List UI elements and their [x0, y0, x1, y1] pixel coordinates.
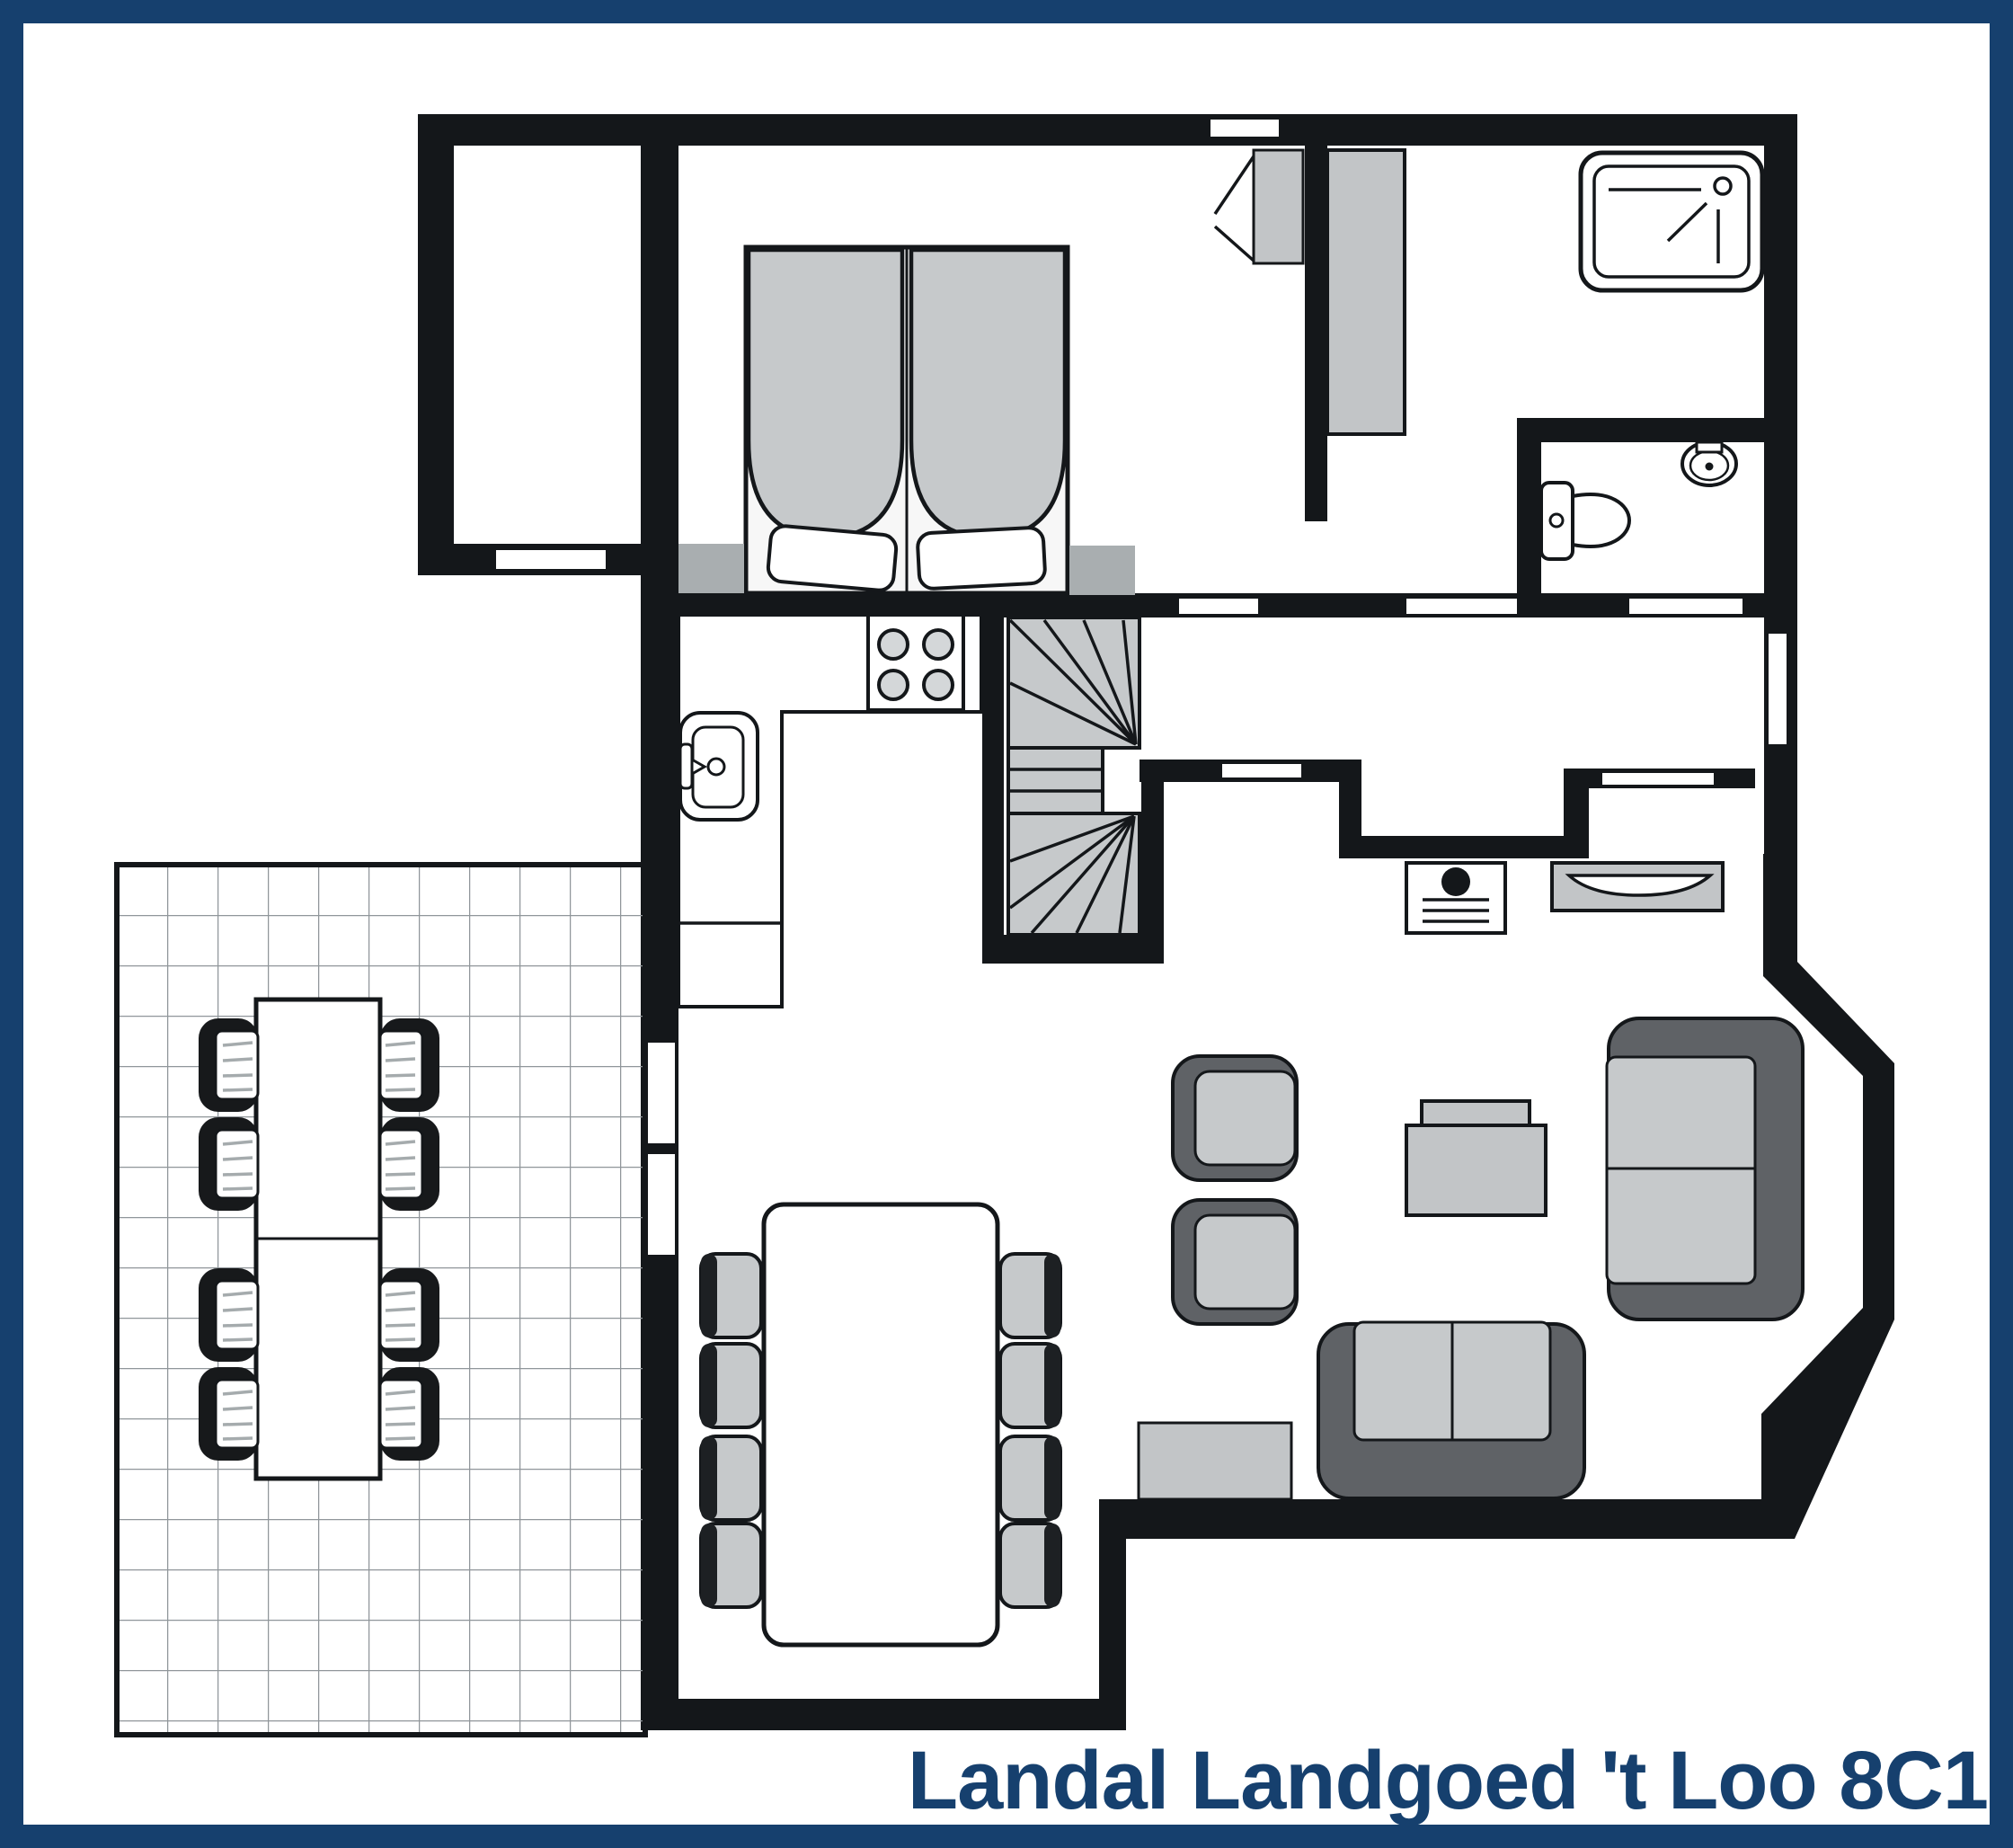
burner [924, 630, 953, 659]
terrace [117, 865, 645, 1735]
sink-drain-dot [1706, 463, 1714, 471]
terrace-door-upper [644, 1043, 675, 1143]
shower-head-icon [1715, 178, 1731, 194]
bedroom-window [1210, 120, 1279, 137]
kitchen-sink [680, 713, 758, 820]
kitchen [678, 615, 981, 1007]
terrace-chair [199, 1117, 258, 1211]
dining-chair [1000, 1436, 1060, 1520]
coffee-table [1406, 1101, 1546, 1215]
stairs-landing-gap [1104, 750, 1140, 812]
sofa-bottom [1318, 1322, 1584, 1498]
dining-chair [701, 1524, 761, 1607]
toilet-sink [1682, 442, 1736, 485]
sink-tap [1697, 442, 1722, 452]
fireplace-flue-dot [1441, 867, 1470, 896]
stove [868, 615, 963, 710]
bathroom-wardrobe [1327, 150, 1405, 434]
bedroom-wardrobe [1254, 150, 1303, 263]
terrace-door-lower [644, 1154, 675, 1255]
terrace-chair [380, 1117, 439, 1211]
side-window [1769, 634, 1787, 744]
kitchen-faucet [680, 744, 692, 788]
kitchen-faucet-knob [708, 759, 724, 775]
wall-bedroom-divider [1305, 144, 1327, 521]
terrace-chair [380, 1268, 439, 1362]
armchair-seat [1195, 1071, 1295, 1165]
wall-top [418, 114, 1797, 146]
armchair-seat [1195, 1215, 1295, 1309]
terrace-chair [380, 1367, 439, 1461]
stairs-mid-steps [1008, 748, 1103, 813]
terrace-chair [199, 1018, 258, 1112]
terrace-chair [199, 1268, 258, 1362]
pillow-right [917, 527, 1045, 589]
living-room-door [1222, 764, 1301, 777]
floorplan-page: Landal Landgoed 't Loo 8C1 [0, 0, 2013, 1848]
tv-cabinet [1139, 1423, 1291, 1499]
staircase [1008, 617, 1140, 935]
wardrobe-door-swing [1215, 156, 1254, 261]
wall-hall-jog [1339, 760, 1361, 858]
wall-stair-right [1141, 760, 1164, 964]
burner [924, 671, 953, 699]
dining-chair [1000, 1344, 1060, 1427]
bathroom [1327, 150, 1762, 434]
sofa-cushions [1607, 1057, 1755, 1284]
toilet-door [1629, 599, 1743, 614]
wall-toilet-left [1517, 418, 1541, 617]
entrance-window [1602, 773, 1714, 785]
armchair [1173, 1056, 1297, 1180]
hallway [1406, 863, 1723, 933]
dining-chair [1000, 1254, 1060, 1337]
sideboard-radiator [1552, 863, 1723, 911]
terrace-chair [380, 1018, 439, 1112]
wall-toilet-top [1517, 418, 1764, 442]
burner [879, 630, 908, 659]
dining-chair [701, 1344, 761, 1427]
bathroom-door [1406, 599, 1517, 614]
coffee-table-shelf [1422, 1101, 1530, 1126]
duvet-right [911, 250, 1065, 538]
dining-chair [701, 1436, 761, 1520]
bedroom-door [1179, 599, 1258, 614]
floor-plan-svg: Landal Landgoed 't Loo 8C1 [0, 0, 2013, 1848]
nightstand-left [678, 544, 744, 593]
toilet-flush-button [1550, 514, 1563, 527]
plan-title: Landal Landgoed 't Loo 8C1 [908, 1735, 1988, 1826]
dining-table [764, 1204, 998, 1645]
sofa-right [1607, 1018, 1803, 1319]
armchair [1173, 1200, 1297, 1324]
fireplace-stove [1406, 863, 1505, 933]
toilet-room [1541, 442, 1736, 559]
burner [879, 671, 908, 699]
wall-niche-left [1564, 769, 1589, 858]
dining-chair [1000, 1524, 1060, 1607]
dining-area [701, 1204, 1060, 1645]
wall-stair-left [982, 613, 1004, 964]
wall-hall-living-b [1361, 836, 1564, 858]
coffee-table-top [1406, 1125, 1546, 1215]
nightstand-right [1069, 546, 1135, 595]
pillow-left [767, 525, 898, 591]
duvet-left [749, 250, 902, 538]
wall-closet-left [418, 114, 454, 575]
closet-window [496, 550, 606, 569]
living-room [1139, 1018, 1803, 1499]
dining-chair [701, 1254, 761, 1337]
bedroom [678, 150, 1303, 595]
terrace-chair [199, 1367, 258, 1461]
wall-right-upper [1764, 114, 1797, 858]
shower [1581, 153, 1762, 290]
toilet-bowl [1573, 494, 1629, 546]
wall-stair-bottom [982, 935, 1164, 964]
